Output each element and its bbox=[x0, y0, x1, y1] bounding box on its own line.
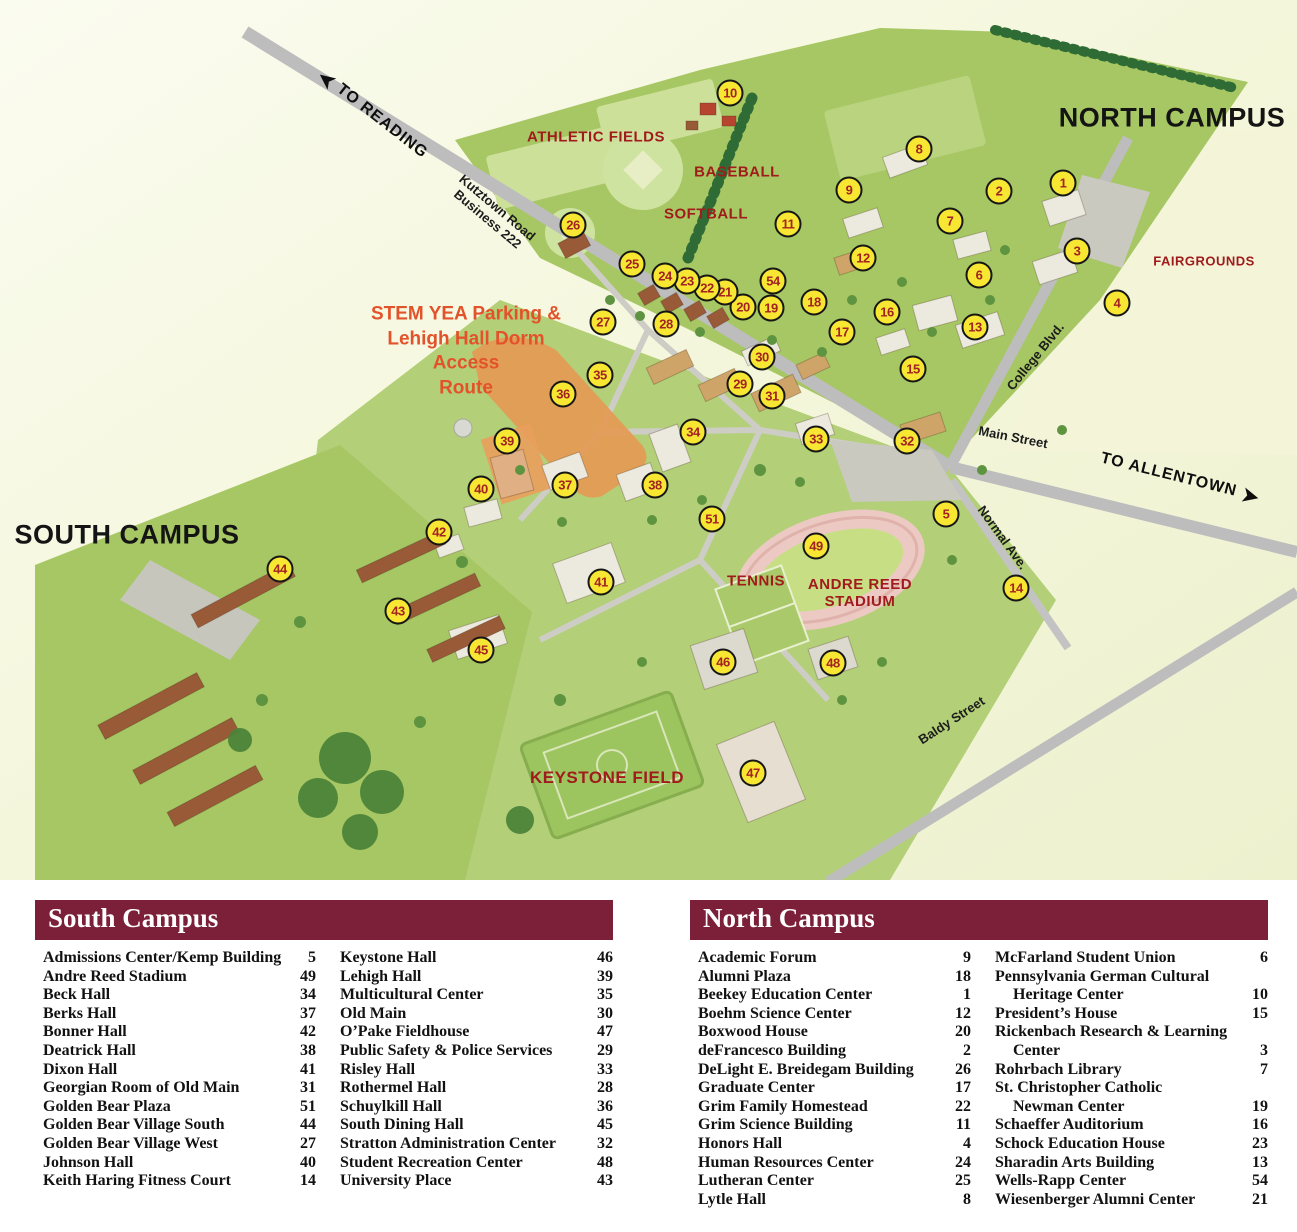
map-marker-41: 41 bbox=[588, 569, 615, 596]
building-number bbox=[1240, 1023, 1268, 1042]
legend-column: Keystone Hall46Lehigh Hall39Multicultura… bbox=[340, 949, 613, 1191]
legend-item: Keystone Hall46 bbox=[340, 949, 613, 968]
building-name: Beck Hall bbox=[43, 986, 288, 1005]
map-marker-18: 18 bbox=[801, 289, 828, 316]
north-campus-legend: North Campus Academic Forum9Alumni Plaza… bbox=[690, 900, 1268, 1209]
legend-item: Stratton Administration Center32 bbox=[340, 1135, 613, 1154]
building-name: Golden Bear Plaza bbox=[43, 1098, 288, 1117]
map-marker-10: 10 bbox=[717, 80, 744, 107]
building-legends: South Campus Admissions Center/Kemp Buil… bbox=[0, 900, 1297, 1209]
building-number: 43 bbox=[585, 1172, 613, 1191]
building-name: St. Christopher Catholic bbox=[995, 1079, 1240, 1098]
legend-item: Rickenbach Research & LearningCenter3 bbox=[995, 1023, 1268, 1060]
south-campus-legend: South Campus Admissions Center/Kemp Buil… bbox=[35, 900, 613, 1209]
building-number: 1 bbox=[943, 986, 971, 1005]
building-number: 15 bbox=[1240, 1005, 1268, 1024]
building-number: 14 bbox=[288, 1172, 316, 1191]
building-name: Dixon Hall bbox=[43, 1061, 288, 1080]
building-name: Multicultural Center bbox=[340, 986, 585, 1005]
building-name: University Place bbox=[340, 1172, 585, 1191]
map-marker-37: 37 bbox=[552, 472, 579, 499]
building-name: deFrancesco Building bbox=[698, 1042, 943, 1061]
building-number: 16 bbox=[1240, 1116, 1268, 1135]
map-label-south-campus: SOUTH CAMPUS bbox=[14, 519, 239, 550]
legend-item: Sharadin Arts Building13 bbox=[995, 1154, 1268, 1173]
map-marker-42: 42 bbox=[426, 519, 453, 546]
building-name: Beekey Education Center bbox=[698, 986, 943, 1005]
map-marker-25: 25 bbox=[619, 251, 646, 278]
map-label-stem-yea-parking: STEM YEA Parking &Lehigh Hall DormAccess… bbox=[371, 303, 561, 402]
legend-item: South Dining Hall45 bbox=[340, 1116, 613, 1135]
legend-item: Johnson Hall40 bbox=[43, 1154, 316, 1173]
building-number: 28 bbox=[585, 1079, 613, 1098]
campus-map: ➤TO READINGKutztown RoadBusiness 222NORT… bbox=[0, 0, 1297, 880]
building-number: 41 bbox=[288, 1061, 316, 1080]
legend-item: Honors Hall4 bbox=[698, 1135, 971, 1154]
building-number: 11 bbox=[943, 1116, 971, 1135]
building-number: 25 bbox=[943, 1172, 971, 1191]
building-name: Public Safety & Police Services bbox=[340, 1042, 585, 1061]
map-marker-5: 5 bbox=[933, 501, 960, 528]
building-number: 31 bbox=[288, 1079, 316, 1098]
legend-item: Andre Reed Stadium49 bbox=[43, 968, 316, 987]
map-marker-15: 15 bbox=[900, 356, 927, 383]
building-name: President’s House bbox=[995, 1005, 1240, 1024]
legend-item: Risley Hall33 bbox=[340, 1061, 613, 1080]
building-number: 9 bbox=[943, 949, 971, 968]
building-name: Boehm Science Center bbox=[698, 1005, 943, 1024]
building-number bbox=[1240, 1079, 1268, 1098]
building-number: 26 bbox=[943, 1061, 971, 1080]
building-name: Golden Bear Village South bbox=[43, 1116, 288, 1135]
map-marker-44: 44 bbox=[267, 556, 294, 583]
building-name: Wiesenberger Alumni Center bbox=[995, 1191, 1240, 1210]
building-number: 47 bbox=[585, 1023, 613, 1042]
building-name: Lytle Hall bbox=[698, 1191, 943, 1210]
building-number: 48 bbox=[585, 1154, 613, 1173]
building-number: 49 bbox=[288, 968, 316, 987]
map-marker-24: 24 bbox=[652, 263, 679, 290]
building-number: 21 bbox=[1240, 1191, 1268, 1210]
map-label-north-campus: NORTH CAMPUS bbox=[1059, 102, 1286, 133]
building-name: Risley Hall bbox=[340, 1061, 585, 1080]
map-marker-31: 31 bbox=[759, 383, 786, 410]
building-name: South Dining Hall bbox=[340, 1116, 585, 1135]
building-number: 54 bbox=[1240, 1172, 1268, 1191]
map-marker-12: 12 bbox=[850, 245, 877, 272]
legend-item: Boehm Science Center12 bbox=[698, 1005, 971, 1024]
map-marker-54: 54 bbox=[760, 268, 787, 295]
legend-item: Keith Haring Fitness Court14 bbox=[43, 1172, 316, 1191]
map-marker-27: 27 bbox=[590, 309, 617, 336]
map-marker-30: 30 bbox=[749, 344, 776, 371]
map-marker-19: 19 bbox=[758, 295, 785, 322]
map-marker-43: 43 bbox=[385, 598, 412, 625]
map-label-tennis: TENNIS bbox=[727, 572, 785, 589]
legend-item: Bonner Hall42 bbox=[43, 1023, 316, 1042]
map-marker-9: 9 bbox=[836, 177, 863, 204]
building-name: Rothermel Hall bbox=[340, 1079, 585, 1098]
south-campus-legend-title: South Campus bbox=[35, 900, 613, 940]
map-marker-38: 38 bbox=[642, 472, 669, 499]
legend-item: Schock Education House23 bbox=[995, 1135, 1268, 1154]
building-name: Admissions Center/Kemp Building bbox=[43, 949, 288, 968]
legend-item: Golden Bear Village South44 bbox=[43, 1116, 316, 1135]
building-number: 3 bbox=[1240, 1042, 1268, 1061]
legend-item: McFarland Student Union6 bbox=[995, 949, 1268, 968]
building-name: McFarland Student Union bbox=[995, 949, 1240, 968]
legend-item: Boxwood House20 bbox=[698, 1023, 971, 1042]
map-marker-49: 49 bbox=[803, 533, 830, 560]
building-number: 39 bbox=[585, 968, 613, 987]
building-number: 4 bbox=[943, 1135, 971, 1154]
building-name: Lutheran Center bbox=[698, 1172, 943, 1191]
building-name: O’Pake Fieldhouse bbox=[340, 1023, 585, 1042]
building-number: 13 bbox=[1240, 1154, 1268, 1173]
building-number: 33 bbox=[585, 1061, 613, 1080]
map-marker-29: 29 bbox=[727, 371, 754, 398]
legend-item: Lutheran Center25 bbox=[698, 1172, 971, 1191]
building-name: Graduate Center bbox=[698, 1079, 943, 1098]
legend-item: Old Main30 bbox=[340, 1005, 613, 1024]
building-number: 45 bbox=[585, 1116, 613, 1135]
legend-item: Golden Bear Village West27 bbox=[43, 1135, 316, 1154]
map-marker-35: 35 bbox=[587, 362, 614, 389]
building-number: 37 bbox=[288, 1005, 316, 1024]
building-name: Alumni Plaza bbox=[698, 968, 943, 987]
map-marker-2: 2 bbox=[986, 178, 1013, 205]
map-label-fairgrounds: FAIRGROUNDS bbox=[1153, 255, 1255, 270]
legend-item: Deatrick Hall38 bbox=[43, 1042, 316, 1061]
building-name: Academic Forum bbox=[698, 949, 943, 968]
legend-item: Academic Forum9 bbox=[698, 949, 971, 968]
map-marker-39: 39 bbox=[494, 428, 521, 455]
map-marker-34: 34 bbox=[680, 419, 707, 446]
building-number: 42 bbox=[288, 1023, 316, 1042]
building-number: 32 bbox=[585, 1135, 613, 1154]
legend-item: President’s House15 bbox=[995, 1005, 1268, 1024]
legend-item: O’Pake Fieldhouse47 bbox=[340, 1023, 613, 1042]
building-number: 29 bbox=[585, 1042, 613, 1061]
legend-item: Wiesenberger Alumni Center21 bbox=[995, 1191, 1268, 1210]
building-number: 30 bbox=[585, 1005, 613, 1024]
map-label-athletic-fields: ATHLETIC FIELDS bbox=[527, 128, 665, 145]
legend-item: Lehigh Hall39 bbox=[340, 968, 613, 987]
legend-item: DeLight E. Breidegam Building26 bbox=[698, 1061, 971, 1080]
building-name: Stratton Administration Center bbox=[340, 1135, 585, 1154]
legend-item: Admissions Center/Kemp Building5 bbox=[43, 949, 316, 968]
building-name: Berks Hall bbox=[43, 1005, 288, 1024]
building-name: Johnson Hall bbox=[43, 1154, 288, 1173]
building-name: Lehigh Hall bbox=[340, 968, 585, 987]
legend-item: Multicultural Center35 bbox=[340, 986, 613, 1005]
legend-item: Student Recreation Center48 bbox=[340, 1154, 613, 1173]
legend-item: Schaeffer Auditorium16 bbox=[995, 1116, 1268, 1135]
building-name: Deatrick Hall bbox=[43, 1042, 288, 1061]
legend-item: Alumni Plaza18 bbox=[698, 968, 971, 987]
building-number: 12 bbox=[943, 1005, 971, 1024]
legend-item: Human Resources Center24 bbox=[698, 1154, 971, 1173]
map-marker-14: 14 bbox=[1003, 575, 1030, 602]
legend-item: Georgian Room of Old Main31 bbox=[43, 1079, 316, 1098]
legend-item: Grim Science Building11 bbox=[698, 1116, 971, 1135]
building-name: Grim Science Building bbox=[698, 1116, 943, 1135]
building-number: 10 bbox=[1240, 986, 1268, 1005]
building-number: 18 bbox=[943, 968, 971, 987]
building-name: Human Resources Center bbox=[698, 1154, 943, 1173]
building-name: Schuylkill Hall bbox=[340, 1098, 585, 1117]
building-name: Rickenbach Research & Learning bbox=[995, 1023, 1240, 1042]
building-number: 7 bbox=[1240, 1061, 1268, 1080]
map-marker-7: 7 bbox=[937, 208, 964, 235]
building-name: Newman Center bbox=[995, 1098, 1240, 1117]
legend-item: Beck Hall34 bbox=[43, 986, 316, 1005]
building-number: 46 bbox=[585, 949, 613, 968]
map-marker-6: 6 bbox=[966, 262, 993, 289]
map-marker-48: 48 bbox=[820, 650, 847, 677]
map-marker-51: 51 bbox=[699, 506, 726, 533]
building-number: 34 bbox=[288, 986, 316, 1005]
map-marker-17: 17 bbox=[829, 319, 856, 346]
building-number: 35 bbox=[585, 986, 613, 1005]
legend-item: Pennsylvania German CulturalHeritage Cen… bbox=[995, 968, 1268, 1005]
building-name: Sharadin Arts Building bbox=[995, 1154, 1240, 1173]
map-marker-36: 36 bbox=[550, 381, 577, 408]
building-number: 2 bbox=[943, 1042, 971, 1061]
map-marker-13: 13 bbox=[962, 314, 989, 341]
building-number: 27 bbox=[288, 1135, 316, 1154]
building-name: Grim Family Homestead bbox=[698, 1098, 943, 1117]
building-name: Honors Hall bbox=[698, 1135, 943, 1154]
building-number bbox=[1240, 968, 1268, 987]
map-label-baseball: BASEBALL bbox=[694, 163, 780, 180]
building-number: 24 bbox=[943, 1154, 971, 1173]
map-label-softball: SOFTBALL bbox=[664, 205, 748, 222]
map-marker-4: 4 bbox=[1104, 290, 1131, 317]
building-number: 8 bbox=[943, 1191, 971, 1210]
north-campus-legend-columns: Academic Forum9Alumni Plaza18Beekey Educ… bbox=[690, 949, 1268, 1209]
map-marker-28: 28 bbox=[653, 311, 680, 338]
building-name: Student Recreation Center bbox=[340, 1154, 585, 1173]
building-name: DeLight E. Breidegam Building bbox=[698, 1061, 943, 1080]
map-marker-40: 40 bbox=[468, 476, 495, 503]
legend-item: University Place43 bbox=[340, 1172, 613, 1191]
building-number: 36 bbox=[585, 1098, 613, 1117]
building-name: Heritage Center bbox=[995, 986, 1240, 1005]
building-number: 20 bbox=[943, 1023, 971, 1042]
legend-item: St. Christopher CatholicNewman Center19 bbox=[995, 1079, 1268, 1116]
building-number: 44 bbox=[288, 1116, 316, 1135]
map-label-keystone-field: KEYSTONE FIELD bbox=[530, 768, 684, 788]
building-number: 51 bbox=[288, 1098, 316, 1117]
building-number: 17 bbox=[943, 1079, 971, 1098]
building-name: Center bbox=[995, 1042, 1240, 1061]
building-name: Schaeffer Auditorium bbox=[995, 1116, 1240, 1135]
map-marker-33: 33 bbox=[803, 426, 830, 453]
building-name: Old Main bbox=[340, 1005, 585, 1024]
legend-item: Beekey Education Center1 bbox=[698, 986, 971, 1005]
map-marker-11: 11 bbox=[775, 211, 802, 238]
building-name: Keith Haring Fitness Court bbox=[43, 1172, 288, 1191]
building-name: Wells-Rapp Center bbox=[995, 1172, 1240, 1191]
map-marker-3: 3 bbox=[1064, 238, 1091, 265]
building-number: 40 bbox=[288, 1154, 316, 1173]
building-number: 22 bbox=[943, 1098, 971, 1117]
legend-item: Rothermel Hall28 bbox=[340, 1079, 613, 1098]
legend-item: Lytle Hall8 bbox=[698, 1191, 971, 1210]
legend-item: deFrancesco Building2 bbox=[698, 1042, 971, 1061]
map-label-andre-reed: ANDRE REEDSTADIUM bbox=[808, 576, 912, 611]
building-number: 38 bbox=[288, 1042, 316, 1061]
map-marker-45: 45 bbox=[468, 637, 495, 664]
legend-column: Admissions Center/Kemp Building5Andre Re… bbox=[43, 949, 316, 1191]
map-marker-1: 1 bbox=[1050, 170, 1077, 197]
building-name: Golden Bear Village West bbox=[43, 1135, 288, 1154]
building-number: 23 bbox=[1240, 1135, 1268, 1154]
building-number: 6 bbox=[1240, 949, 1268, 968]
legend-item: Dixon Hall41 bbox=[43, 1061, 316, 1080]
legend-item: Berks Hall37 bbox=[43, 1005, 316, 1024]
building-name: Schock Education House bbox=[995, 1135, 1240, 1154]
legend-item: Rohrbach Library7 bbox=[995, 1061, 1268, 1080]
map-marker-32: 32 bbox=[894, 428, 921, 455]
building-name: Rohrbach Library bbox=[995, 1061, 1240, 1080]
legend-column: McFarland Student Union6Pennsylvania Ger… bbox=[995, 949, 1268, 1209]
building-name: Pennsylvania German Cultural bbox=[995, 968, 1240, 987]
building-name: Georgian Room of Old Main bbox=[43, 1079, 288, 1098]
building-number: 5 bbox=[288, 949, 316, 968]
map-marker-8: 8 bbox=[906, 136, 933, 163]
building-number: 19 bbox=[1240, 1098, 1268, 1117]
legend-column: Academic Forum9Alumni Plaza18Beekey Educ… bbox=[698, 949, 971, 1209]
map-marker-47: 47 bbox=[740, 760, 767, 787]
legend-item: Public Safety & Police Services29 bbox=[340, 1042, 613, 1061]
legend-item: Graduate Center17 bbox=[698, 1079, 971, 1098]
building-name: Andre Reed Stadium bbox=[43, 968, 288, 987]
legend-item: Grim Family Homestead22 bbox=[698, 1098, 971, 1117]
building-name: Boxwood House bbox=[698, 1023, 943, 1042]
south-campus-legend-columns: Admissions Center/Kemp Building5Andre Re… bbox=[35, 949, 613, 1191]
map-marker-26: 26 bbox=[560, 212, 587, 239]
legend-item: Schuylkill Hall36 bbox=[340, 1098, 613, 1117]
building-name: Keystone Hall bbox=[340, 949, 585, 968]
legend-item: Wells-Rapp Center54 bbox=[995, 1172, 1268, 1191]
building-name: Bonner Hall bbox=[43, 1023, 288, 1042]
legend-item: Golden Bear Plaza51 bbox=[43, 1098, 316, 1117]
north-campus-legend-title: North Campus bbox=[690, 900, 1268, 940]
map-marker-16: 16 bbox=[874, 299, 901, 326]
map-marker-46: 46 bbox=[710, 649, 737, 676]
